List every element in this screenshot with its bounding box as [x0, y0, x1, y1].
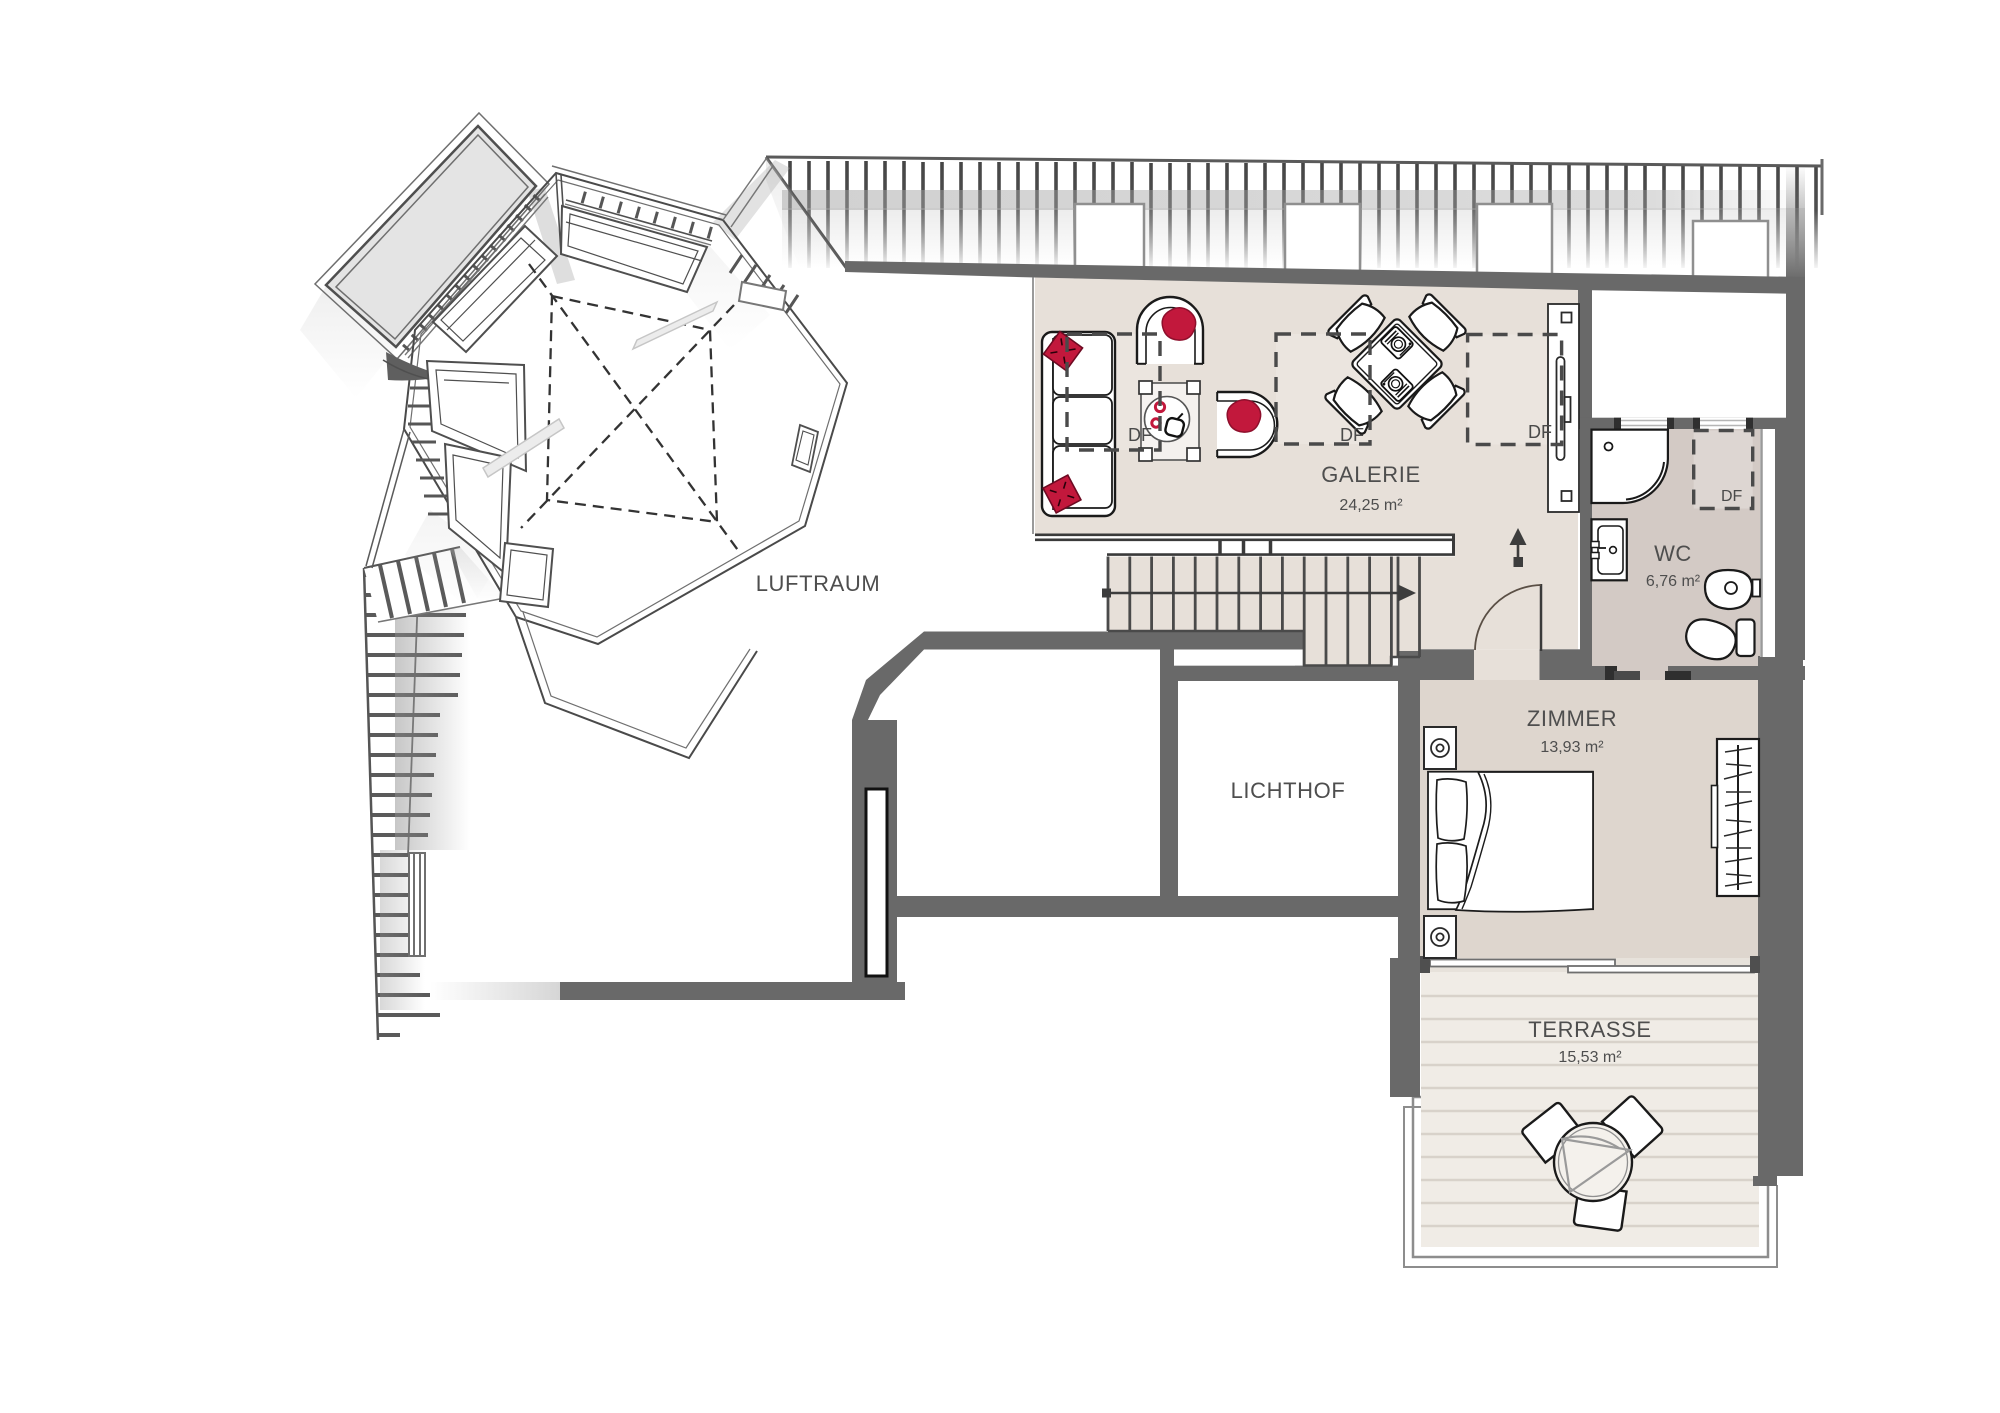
svg-text:15,53 m²: 15,53 m² — [1558, 1049, 1622, 1066]
svg-text:24,25 m²: 24,25 m² — [1339, 497, 1403, 514]
svg-text:13,93 m²: 13,93 m² — [1540, 739, 1604, 756]
svg-text:WC: WC — [1654, 541, 1692, 566]
svg-text:DF: DF — [1721, 488, 1743, 505]
svg-text:ZIMMER: ZIMMER — [1527, 706, 1617, 731]
svg-text:DF: DF — [1128, 425, 1152, 445]
svg-text:LICHTHOF: LICHTHOF — [1231, 778, 1346, 803]
svg-text:6,76 m²: 6,76 m² — [1646, 573, 1701, 590]
svg-text:GALERIE: GALERIE — [1321, 462, 1421, 487]
svg-text:DF: DF — [1528, 422, 1552, 442]
svg-text:DF: DF — [1340, 425, 1364, 445]
svg-text:TERRASSE: TERRASSE — [1528, 1017, 1651, 1042]
svg-text:LUFTRAUM: LUFTRAUM — [756, 571, 881, 596]
